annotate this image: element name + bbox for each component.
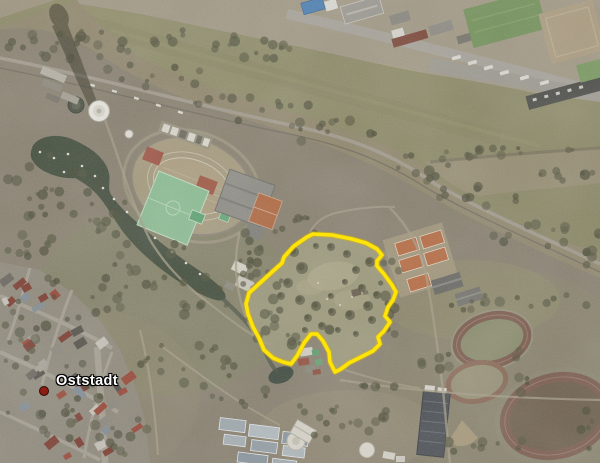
map-canvas[interactable]: Oststadt [0,0,600,463]
place-marker[interactable] [39,386,49,396]
satellite-imagery [0,0,600,463]
place-label[interactable]: Oststadt [56,373,118,389]
